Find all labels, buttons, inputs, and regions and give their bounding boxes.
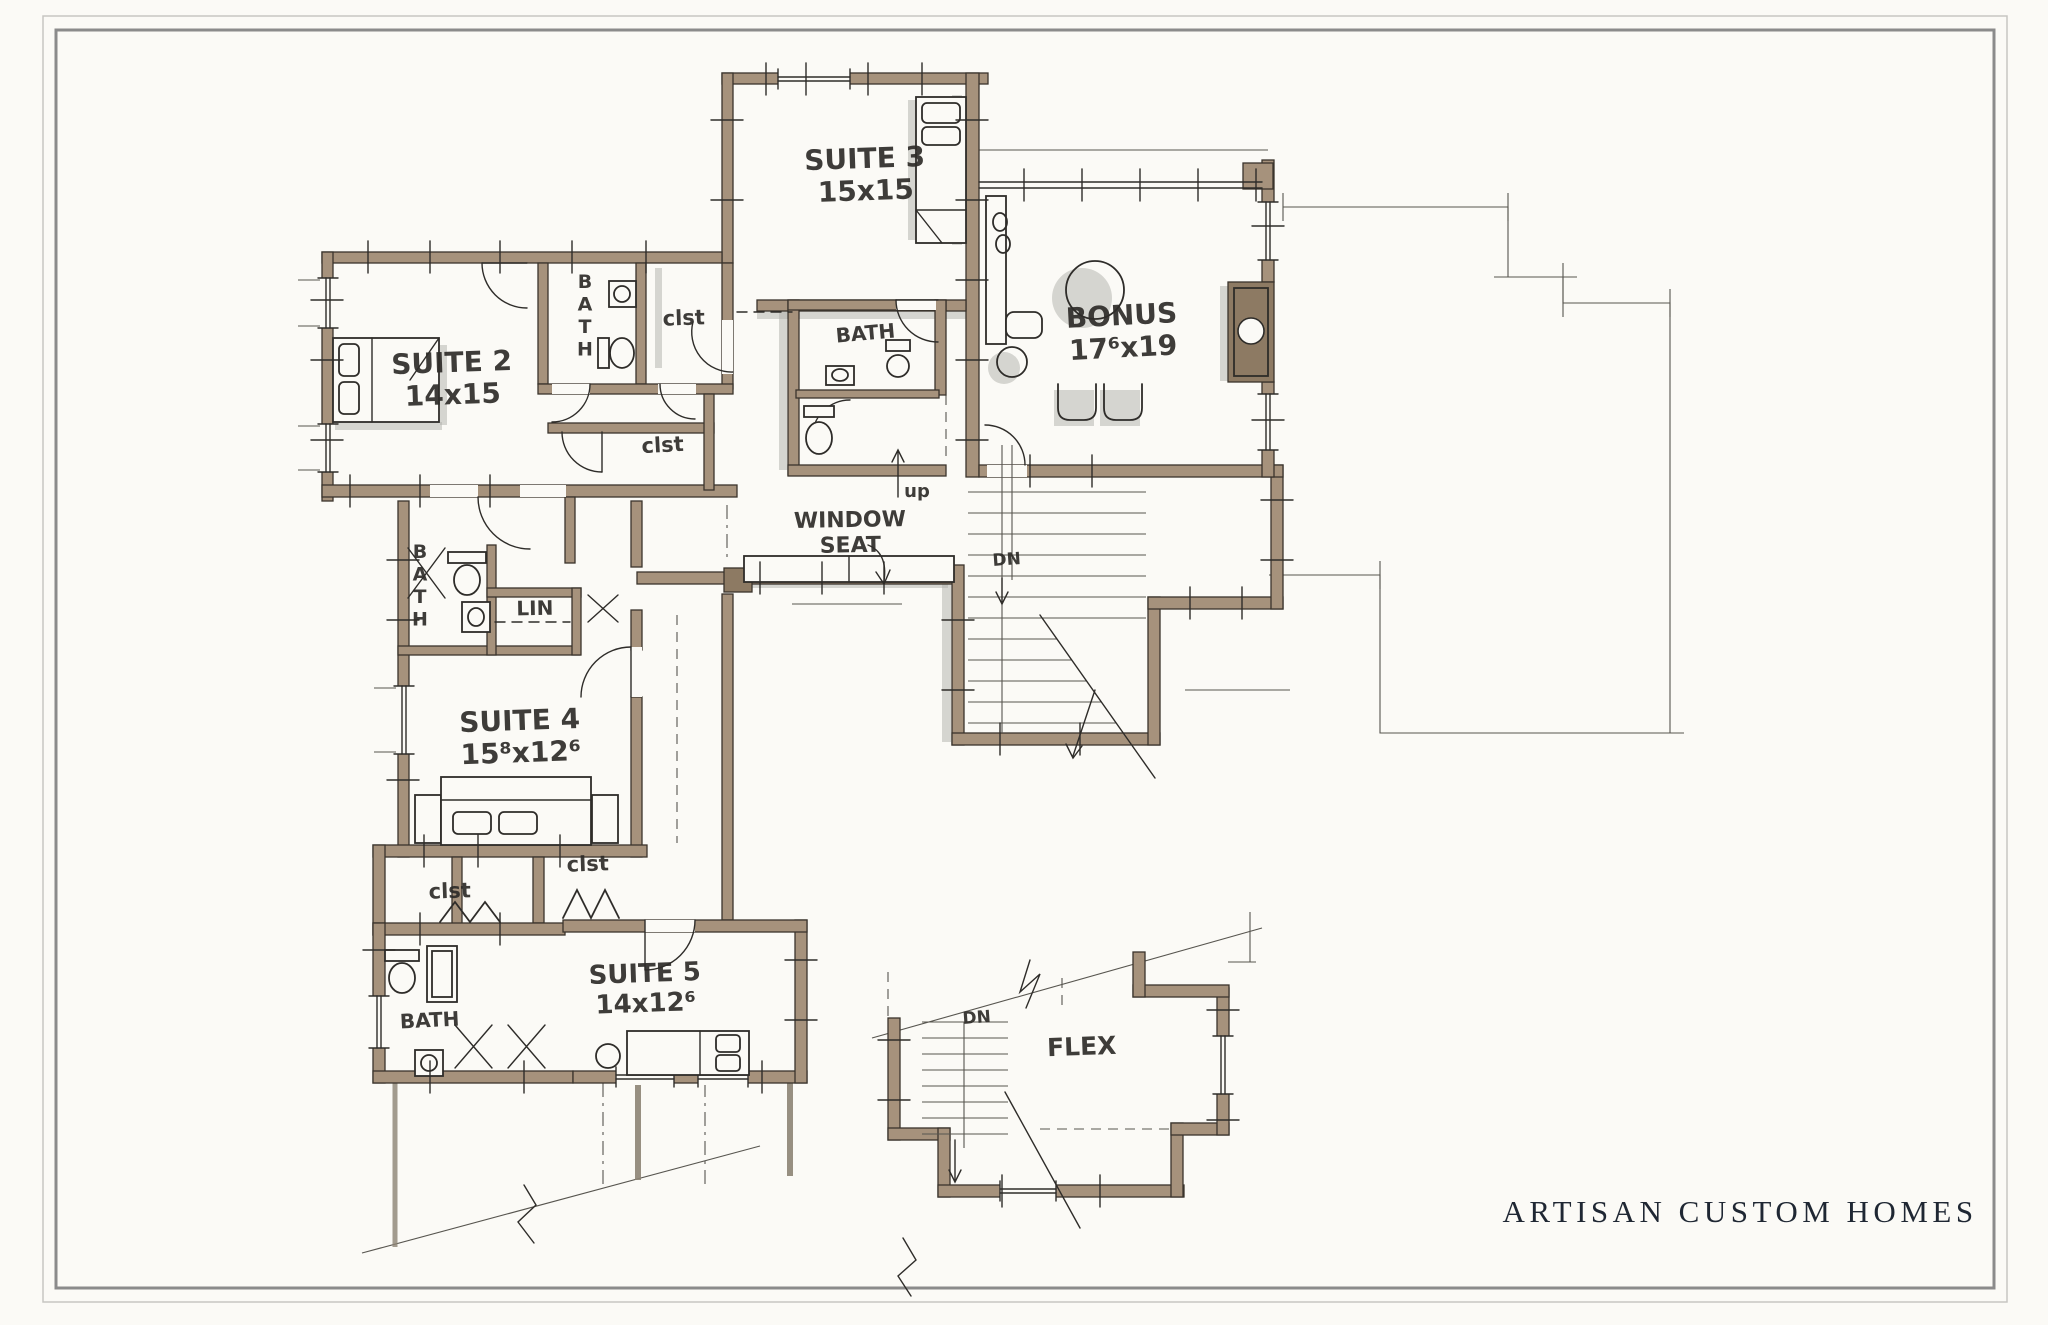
bonus-window-wall xyxy=(979,182,1262,188)
label-bath-top: BATH xyxy=(577,271,593,360)
stair-break-line-flex xyxy=(1005,1092,1080,1228)
shower-bottom-bath xyxy=(427,946,457,1002)
window-bath-bottom-left xyxy=(369,996,389,1048)
flex-left-wall xyxy=(888,1018,900,1140)
suite3-top-wall xyxy=(722,73,988,84)
label-flex-name: FLEX xyxy=(1047,1031,1117,1062)
break-mark-2 xyxy=(1020,960,1040,1008)
break-mark xyxy=(518,1185,536,1243)
bifold-door-1 xyxy=(563,890,619,918)
stairwell-left-wall xyxy=(952,565,964,745)
window-flex-bottom xyxy=(1000,1181,1056,1201)
bed-suite4 xyxy=(415,777,618,845)
label-clst-bottom-left: clst xyxy=(428,878,471,903)
grade-line xyxy=(362,1146,760,1253)
label-bath-bottom: BATH xyxy=(399,1006,460,1033)
window-flex-right xyxy=(1213,1036,1233,1094)
flex-bottom-wall xyxy=(938,1185,1184,1197)
bonus-left-wall xyxy=(966,73,979,477)
label-bonus-name: BONUS17⁶x19 xyxy=(1065,296,1180,367)
suite4-left-wall xyxy=(398,501,409,857)
label-up: up xyxy=(904,481,930,502)
sink-bottom-bath xyxy=(415,1050,443,1076)
label-clst-mid: clst xyxy=(641,432,684,458)
toilet-top-bath xyxy=(598,338,634,368)
bed-suite5 xyxy=(596,1031,749,1075)
drawing-sheet: SUITE 315x15SUITE 214x15BONUS17⁶x19SUITE… xyxy=(0,0,2048,1325)
floor-plan-drawing: SUITE 315x15SUITE 214x15BONUS17⁶x19SUITE… xyxy=(0,0,2048,1325)
page-frame xyxy=(43,16,2007,1302)
bifold-door-2 xyxy=(440,902,500,922)
window-suite3-top xyxy=(778,69,850,89)
window-suite4-left xyxy=(394,686,414,754)
sink-left-bath xyxy=(462,602,490,632)
toilet-left-bath xyxy=(448,552,486,595)
label-window-seat: WINDOWSEAT xyxy=(794,507,907,559)
stair-break-line xyxy=(1040,615,1155,778)
fireplace xyxy=(1228,282,1274,382)
label-clst-bottom-right: clst xyxy=(566,851,609,876)
roofline-step-outline xyxy=(1283,207,1670,733)
window-suite2-left-1 xyxy=(318,278,338,328)
sink-mid-bath xyxy=(826,366,854,385)
stairs-main xyxy=(892,445,1155,778)
label-dn-flex: DN xyxy=(962,1007,992,1029)
window-seat-bench xyxy=(744,556,954,582)
window-bonus-right-2 xyxy=(1258,394,1278,450)
label-suite-4-name: SUITE 415⁸x12⁶ xyxy=(459,702,582,771)
toilet-bottom-bath xyxy=(385,950,419,993)
label-bath-left: BATH xyxy=(412,541,428,630)
label-suite-5-name: SUITE 514x12⁶ xyxy=(588,957,702,1021)
bonus-armchair xyxy=(1006,312,1042,338)
label-lin: LIN xyxy=(516,596,553,621)
label-suite-2-name: SUITE 214x15 xyxy=(391,344,514,413)
label-dn-main: DN xyxy=(992,549,1022,571)
toilet-mid-bath-upper xyxy=(886,340,910,377)
walls xyxy=(322,73,1283,1197)
brand-text: ARTISAN CUSTOM HOMES xyxy=(1502,1194,1977,1229)
bonus-counter xyxy=(986,196,1006,344)
toilet-mid-bath-lower xyxy=(804,406,834,454)
window-bonus-right-1 xyxy=(1258,202,1278,260)
side-table xyxy=(596,1044,620,1068)
label-clst-top: clst xyxy=(662,305,705,330)
window-suite2-left-2 xyxy=(318,424,338,472)
sink-top-bath xyxy=(609,281,636,307)
label-suite-3-name: SUITE 315x15 xyxy=(804,140,927,209)
suite2-top-wall xyxy=(322,252,722,263)
